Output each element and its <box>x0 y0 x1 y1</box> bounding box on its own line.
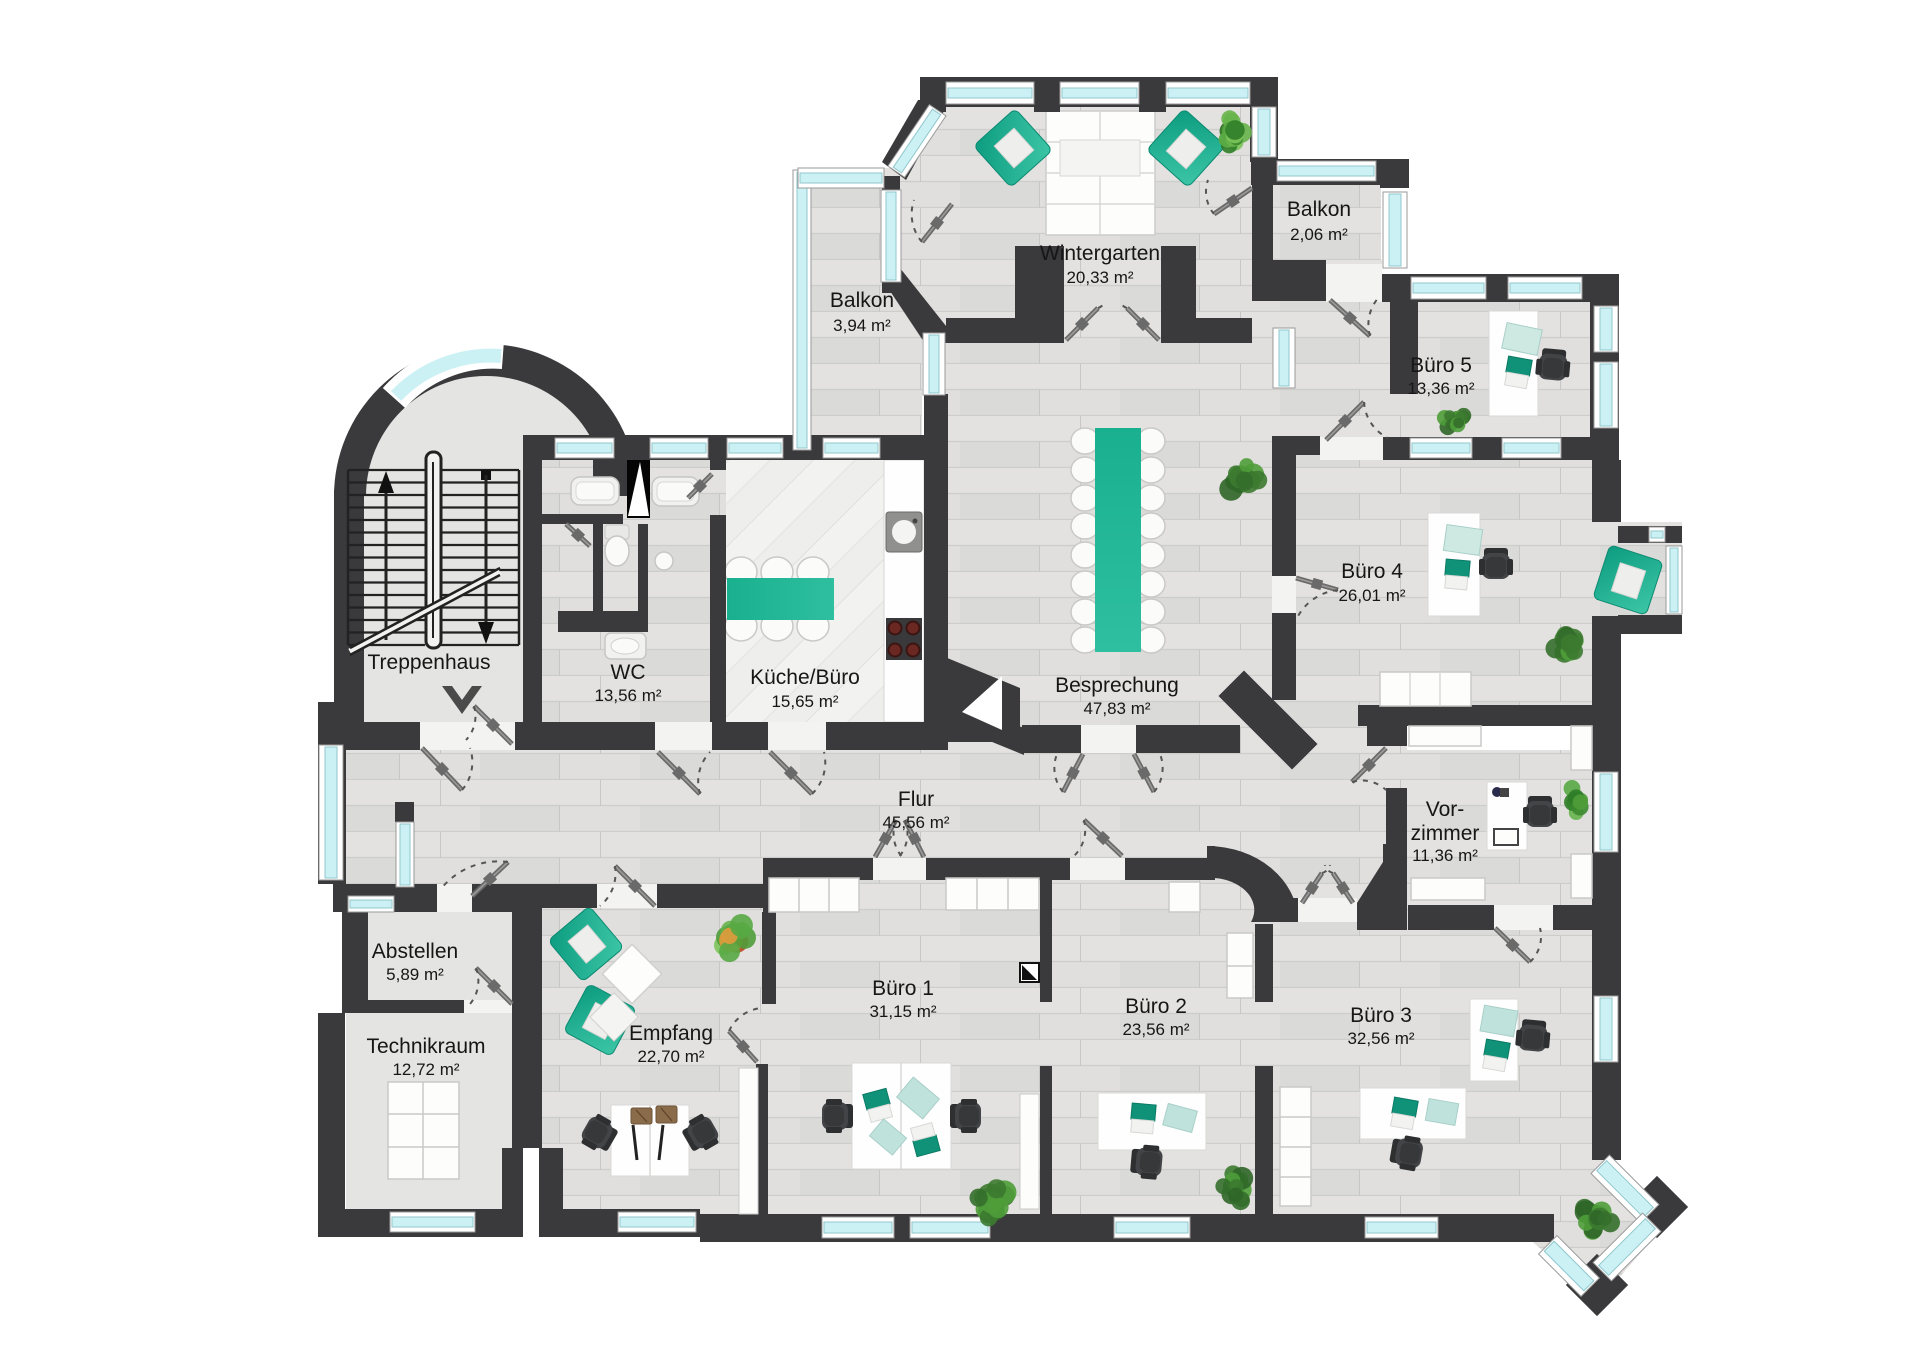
svg-text:20,33 m²: 20,33 m² <box>1066 268 1133 287</box>
svg-text:Büro 1: Büro 1 <box>872 977 934 1000</box>
svg-text:zimmer: zimmer <box>1411 822 1480 845</box>
svg-text:Büro 5: Büro 5 <box>1410 354 1472 377</box>
svg-text:Abstellen: Abstellen <box>372 940 458 963</box>
svg-text:15,65 m²: 15,65 m² <box>771 692 838 711</box>
svg-text:47,83 m²: 47,83 m² <box>1083 699 1150 718</box>
svg-text:Büro 3: Büro 3 <box>1350 1004 1412 1027</box>
svg-text:Balkon: Balkon <box>830 289 894 312</box>
svg-text:Büro 2: Büro 2 <box>1125 995 1187 1018</box>
svg-text:26,01 m²: 26,01 m² <box>1338 586 1405 605</box>
svg-text:13,56 m²: 13,56 m² <box>594 686 661 705</box>
svg-text:Technikraum: Technikraum <box>366 1035 485 1058</box>
svg-text:Flur: Flur <box>898 788 934 811</box>
svg-text:13,36 m²: 13,36 m² <box>1407 379 1474 398</box>
svg-text:45,56 m²: 45,56 m² <box>882 813 949 832</box>
svg-text:32,56 m²: 32,56 m² <box>1347 1029 1414 1048</box>
svg-text:WC: WC <box>611 661 646 684</box>
svg-text:23,56 m²: 23,56 m² <box>1122 1020 1189 1039</box>
svg-text:Vor-: Vor- <box>1426 798 1465 821</box>
svg-text:3,94 m²: 3,94 m² <box>833 316 891 335</box>
svg-text:Büro 4: Büro 4 <box>1341 560 1403 583</box>
svg-text:12,72 m²: 12,72 m² <box>392 1060 459 1079</box>
svg-text:22,70 m²: 22,70 m² <box>637 1047 704 1066</box>
svg-text:5,89 m²: 5,89 m² <box>386 965 444 984</box>
svg-text:Wintergarten: Wintergarten <box>1040 242 1160 265</box>
svg-text:Treppenhaus: Treppenhaus <box>368 651 491 674</box>
svg-text:2,06 m²: 2,06 m² <box>1290 225 1348 244</box>
svg-text:11,36 m²: 11,36 m² <box>1412 846 1478 865</box>
svg-text:Empfang: Empfang <box>629 1022 713 1045</box>
svg-text:Balkon: Balkon <box>1287 198 1351 221</box>
svg-text:31,15 m²: 31,15 m² <box>869 1002 936 1021</box>
svg-text:Küche/Büro: Küche/Büro <box>750 666 860 689</box>
svg-text:Besprechung: Besprechung <box>1055 674 1179 697</box>
